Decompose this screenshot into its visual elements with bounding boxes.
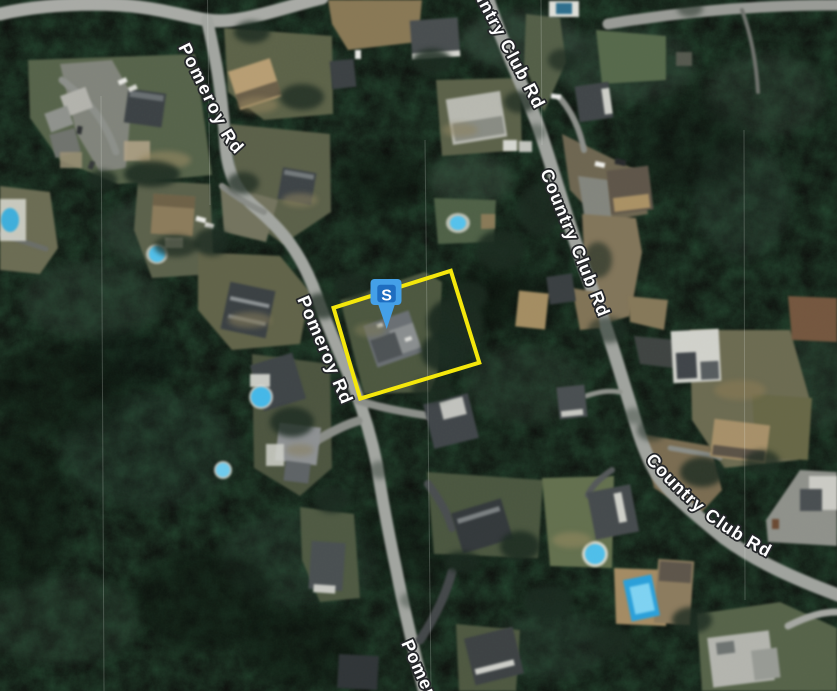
svg-text:S: S [381,287,392,304]
